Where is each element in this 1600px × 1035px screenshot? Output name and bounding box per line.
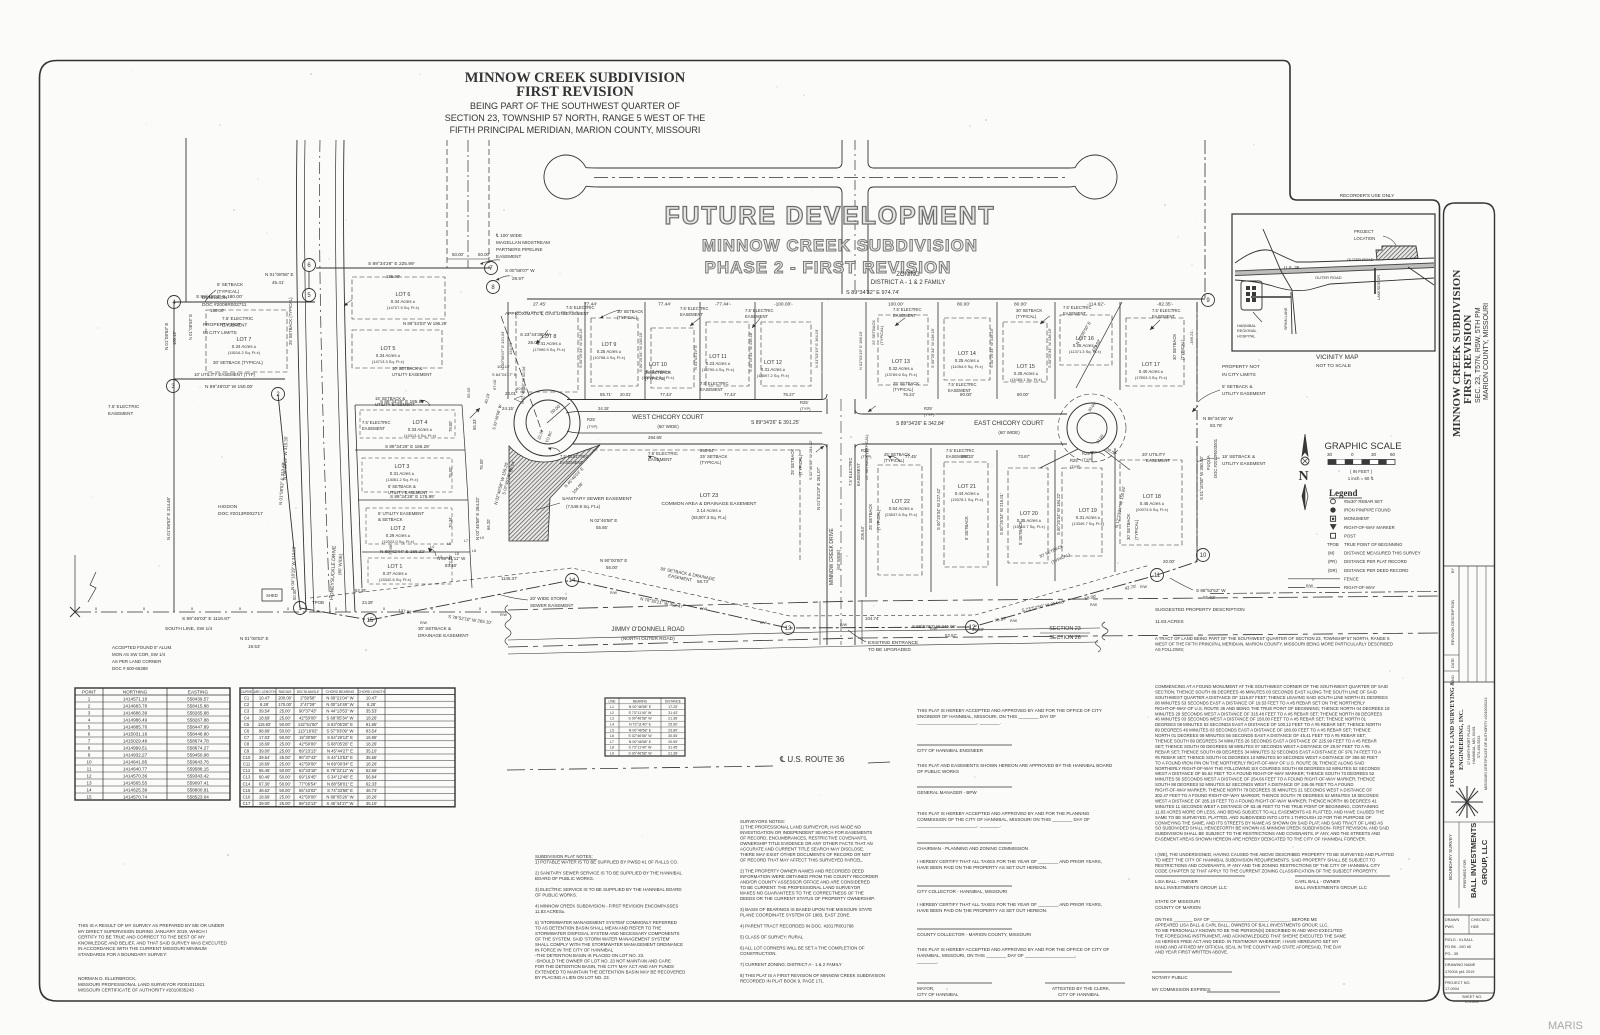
svg-text:S 00°58'07" W: S 00°58'07" W bbox=[505, 268, 535, 273]
svg-text:30' SETBACK: 30' SETBACK bbox=[1126, 514, 1131, 540]
svg-text:THERE MAY EXIST OTHER DOCUMENT: THERE MAY EXIST OTHER DOCUMENTS OF RECOR… bbox=[740, 852, 871, 857]
svg-text:L9: L9 bbox=[480, 536, 484, 540]
svg-text:MONUMENT: MONUMENT bbox=[1344, 516, 1370, 521]
svg-text:(14713.3 Sq. Ft.±): (14713.3 Sq. Ft.±) bbox=[372, 359, 405, 364]
svg-text:SAME TO BE SURVEYED, PLATTED,: SAME TO BE SURVEYED, PLATTED, AND SUBDIV… bbox=[1155, 815, 1372, 820]
svg-text:THIS PLAT IS HEREBY ACCEPTED A: THIS PLAT IS HEREBY ACCEPTED AND APPROVE… bbox=[917, 811, 1090, 816]
svg-text:POST: POST bbox=[1344, 533, 1356, 538]
svg-text:OF THE SYSTEM. SAID 'STORM WA: OF THE SYSTEM. SAID 'STORM WATER MANAGEM… bbox=[535, 937, 670, 942]
svg-text:EAST CHICORY COURT: EAST CHICORY COURT bbox=[974, 420, 1044, 427]
svg-text:C1: C1 bbox=[244, 696, 250, 701]
svg-text:MON AS SW COR, SW 1/4: MON AS SW COR, SW 1/4 bbox=[112, 652, 166, 657]
svg-text:C6: C6 bbox=[244, 729, 250, 734]
svg-text:50.00': 50.00' bbox=[279, 788, 290, 793]
svg-text:A TRACT OF LAND BEING PART OF: A TRACT OF LAND BEING PART OF THE SOUTHW… bbox=[1155, 636, 1390, 641]
svg-text:50.00': 50.00' bbox=[279, 781, 290, 786]
svg-text:75.00': 75.00' bbox=[448, 467, 453, 478]
svg-text:1414625.39: 1414625.39 bbox=[123, 787, 148, 792]
svg-text:48.62': 48.62' bbox=[259, 788, 270, 793]
svg-text:(TYP): (TYP) bbox=[924, 412, 935, 417]
svg-text:0.25 Acres ±: 0.25 Acres ± bbox=[1014, 371, 1039, 376]
svg-text:89 DEGREES 46 MINUTES 03 SECON: 89 DEGREES 46 MINUTES 03 SECONDS EAST A … bbox=[1155, 728, 1371, 733]
svg-text:(10790.4 Sq. Ft.±): (10790.4 Sq. Ft.±) bbox=[702, 367, 735, 372]
svg-text:STORMWATER DISPOSAL SYSTEM AND: STORMWATER DISPOSAL SYSTEM AND NECESSARY… bbox=[535, 931, 680, 936]
svg-text:10' UTILITY EASEMENT (TYP): 10' UTILITY EASEMENT (TYP) bbox=[194, 372, 256, 377]
svg-text:MINUTES 29 SECONDS WEST A DIST: MINUTES 29 SECONDS WEST A DISTANCE OF 31… bbox=[1155, 711, 1382, 716]
svg-text:DOC #2009R002711: DOC #2009R002711 bbox=[202, 302, 247, 308]
svg-text:SECTION 26: SECTION 26 bbox=[1049, 635, 1080, 641]
svg-text:AS HER/HIS FREE ACT AND DEED.: AS HER/HIS FREE ACT AND DEED. IN TESTIMO… bbox=[1155, 939, 1339, 944]
svg-text:LOT 15: LOT 15 bbox=[1017, 364, 1035, 370]
svg-text:CITY OF HANNIBAL ENGINEER: CITY OF HANNIBAL ENGINEER bbox=[917, 748, 984, 753]
svg-text:S 02°46'58" W 284.32': S 02°46'58" W 284.32' bbox=[808, 440, 813, 480]
svg-text:CARL BALL - OWNER: CARL BALL - OWNER bbox=[1295, 879, 1341, 884]
svg-text:5' SETBACK &: 5' SETBACK & bbox=[388, 484, 416, 489]
svg-text:(19378.1 Sq. Ft.±): (19378.1 Sq. Ft.±) bbox=[951, 497, 984, 502]
svg-text:12: 12 bbox=[86, 773, 92, 778]
svg-text:TPOB: TPOB bbox=[1327, 542, 1339, 547]
svg-text:INFORMATION WERE OBTAINED FROM: INFORMATION WERE OBTAINED FROM THE COUNT… bbox=[740, 874, 878, 879]
svg-text:(M): (M) bbox=[1328, 551, 1335, 556]
svg-text:S 01°10'50" W 350.50': S 01°10'50" W 350.50' bbox=[1199, 456, 1204, 500]
svg-text:LOT 5: LOT 5 bbox=[381, 346, 396, 352]
svg-text:73.67': 73.67' bbox=[1018, 454, 1030, 459]
svg-text:-82.35'-: -82.35'- bbox=[1157, 302, 1174, 308]
svg-text:LOT 10: LOT 10 bbox=[649, 362, 667, 368]
svg-text:90°37'43": 90°37'43" bbox=[299, 709, 317, 714]
svg-text:18.26': 18.26' bbox=[366, 795, 377, 800]
svg-text:7.5' ELECTRIC: 7.5' ELECTRIC bbox=[1152, 308, 1181, 313]
svg-text:L6: L6 bbox=[455, 552, 459, 556]
svg-text:S 02°46'58" W: S 02°46'58" W bbox=[628, 734, 652, 738]
svg-text:FUTURE DEVELOPMENT: FUTURE DEVELOPMENT bbox=[664, 202, 995, 230]
svg-text:(14707.9 Sq. Ft.±): (14707.9 Sq. Ft.±) bbox=[387, 305, 420, 310]
svg-text:HANNIBAL: HANNIBAL bbox=[1237, 324, 1256, 328]
svg-text:15' SETBACK &: 15' SETBACK & bbox=[1222, 454, 1255, 459]
svg-text:ENGINEERING, INC.: ENGINEERING, INC. bbox=[1458, 709, 1465, 770]
svg-text:R/W: R/W bbox=[1140, 585, 1148, 589]
svg-text:JIMMY O'DONNELL ROAD: JIMMY O'DONNELL ROAD bbox=[611, 627, 685, 633]
svg-text:55.65': 55.65' bbox=[596, 525, 608, 530]
svg-text:S 89°34'26" E 342.84': S 89°34'26" E 342.84' bbox=[896, 421, 945, 427]
svg-text:S 89°46'03" E 1116.87': S 89°46'03" E 1116.87' bbox=[182, 616, 231, 622]
svg-text:25.00': 25.00' bbox=[279, 755, 290, 760]
svg-text:LOT 2: LOT 2 bbox=[391, 526, 406, 532]
svg-text:(10758.4 Sq. Ft.±): (10758.4 Sq. Ft.±) bbox=[593, 355, 626, 360]
svg-text:7.5' ELECTRIC: 7.5' ELECTRIC bbox=[848, 458, 853, 487]
svg-text:5) CLASS OF SURVEY: RURAL: 5) CLASS OF SURVEY: RURAL bbox=[740, 935, 804, 940]
svg-text:42°50'00": 42°50'00" bbox=[299, 715, 317, 720]
svg-text:7: 7 bbox=[88, 738, 91, 743]
svg-text:8: 8 bbox=[88, 745, 91, 750]
svg-text:DEEDS OR THE CURRENT STATUS OF: DEEDS OR THE CURRENT STATUS OF PROPERTY … bbox=[740, 896, 875, 901]
svg-text:558267.88: 558267.88 bbox=[187, 717, 209, 722]
svg-text:NORTHERLY RIGHT-OF-WAY THE FOL: NORTHERLY RIGHT-OF-WAY THE FOLLOWING SIX… bbox=[1155, 766, 1380, 771]
svg-text:SUBDIVISION SHALL BE SUBJECT T: SUBDIVISION SHALL BE SUBJECT TO THE REST… bbox=[1155, 831, 1380, 836]
svg-text:558674.27: 558674.27 bbox=[187, 745, 209, 750]
svg-text:67.00': 67.00' bbox=[492, 379, 497, 390]
svg-text:REGIONAL: REGIONAL bbox=[1237, 329, 1257, 333]
svg-text:EASEMENT: EASEMENT bbox=[566, 311, 589, 316]
svg-text:104.74': 104.74' bbox=[865, 616, 879, 621]
svg-text:N 89°42'44" E 166.22': N 89°42'44" E 166.22' bbox=[380, 549, 425, 554]
svg-text:& SETBACK: & SETBACK bbox=[378, 517, 403, 522]
svg-text:S 63°05'26" E: S 63°05'26" E bbox=[327, 722, 353, 727]
svg-text:80.00': 80.00' bbox=[1014, 302, 1027, 308]
svg-text:70.34': 70.34' bbox=[448, 517, 453, 528]
svg-text:PG - 35: PG - 35 bbox=[1445, 952, 1458, 956]
svg-text:LOT 12: LOT 12 bbox=[764, 360, 782, 366]
svg-text:IN FORCE IN THE CITY OF HANNIB: IN FORCE IN THE CITY OF HANNIBAL bbox=[535, 948, 614, 953]
svg-text:PARTNERS PIPELINE: PARTNERS PIPELINE bbox=[496, 247, 543, 252]
svg-text:(60' WIDE): (60' WIDE) bbox=[836, 549, 841, 570]
svg-text:(TYPICAL): (TYPICAL) bbox=[645, 376, 666, 381]
svg-text:63°33'16": 63°33'16" bbox=[299, 768, 317, 773]
svg-text:(DR): (DR) bbox=[1328, 568, 1338, 573]
svg-text:LOCATION: LOCATION bbox=[1354, 236, 1375, 241]
svg-text:20.59': 20.59' bbox=[668, 740, 678, 744]
svg-text:C13: C13 bbox=[243, 775, 251, 780]
svg-text:N 00°46'58" E: N 00°46'58" E bbox=[629, 705, 652, 709]
svg-text:N 89°34'26" W: N 89°34'26" W bbox=[1203, 416, 1234, 421]
svg-text:(60' WIDE): (60' WIDE) bbox=[657, 424, 679, 429]
svg-text:HANNIBAL, MISSOURI, ON THIS __: HANNIBAL, MISSOURI, ON THIS ________ DAY… bbox=[917, 953, 1076, 958]
svg-text:11.83 ACRES±.: 11.83 ACRES±. bbox=[535, 909, 565, 914]
svg-text:18.26': 18.26' bbox=[366, 762, 377, 767]
svg-text:TO ME PERSONALLY KNOWN TO BE T: TO ME PERSONALLY KNOWN TO BE THE PERSON(… bbox=[1155, 928, 1342, 933]
svg-text:(93,007.3 Sq. Ft.±): (93,007.3 Sq. Ft.±) bbox=[692, 515, 727, 520]
svg-text:UTILITY EASEMENT: UTILITY EASEMENT bbox=[392, 372, 432, 377]
svg-text:5' SETBACK: 5' SETBACK bbox=[964, 516, 969, 540]
svg-text:11.83 ACRES: 11.83 ACRES bbox=[1155, 619, 1184, 624]
svg-text:25.00': 25.00' bbox=[279, 801, 290, 806]
svg-text:L3: L3 bbox=[438, 555, 442, 559]
svg-text:LOT 21: LOT 21 bbox=[958, 484, 976, 490]
svg-text:C10: C10 bbox=[243, 755, 251, 760]
svg-text:BEARING: BEARING bbox=[633, 699, 648, 703]
svg-text:50.00': 50.00' bbox=[279, 735, 290, 740]
svg-text:1414686.39: 1414686.39 bbox=[123, 710, 148, 715]
svg-text:N 01°08'53" E 314.48': N 01°08'53" E 314.48' bbox=[166, 497, 171, 540]
svg-text:ZONING: ZONING bbox=[896, 272, 920, 278]
svg-text:I (WE), THE UNDERSIGNED, HAVIN: I (WE), THE UNDERSIGNED, HAVING CAUSED T… bbox=[1155, 852, 1394, 857]
svg-text:30.55': 30.55' bbox=[668, 734, 678, 738]
svg-text:(13061.2 Sq. Ft.±): (13061.2 Sq. Ft.±) bbox=[386, 477, 419, 482]
svg-text:25.00': 25.00' bbox=[279, 762, 290, 767]
svg-text:25' SETBACK (TYPICAL): 25' SETBACK (TYPICAL) bbox=[288, 297, 293, 345]
svg-text:2) THE PROPERTY OWNER NAMES AN: 2) THE PROPERTY OWNER NAMES AND RECORDED… bbox=[740, 869, 864, 874]
svg-text:BALL INVESTMENTS GROUP, LLC: BALL INVESTMENTS GROUP, LLC bbox=[1155, 885, 1228, 890]
svg-text:21.38': 21.38' bbox=[668, 752, 678, 756]
svg-text:S 89°34'26" E 225.99': S 89°34'26" E 225.99' bbox=[368, 261, 415, 267]
svg-text:N: N bbox=[1299, 469, 1309, 484]
svg-text:(23537.6 Sq. Ft.±): (23537.6 Sq. Ft.±) bbox=[885, 512, 918, 517]
svg-text:EASEMENT: EASEMENT bbox=[496, 254, 521, 259]
svg-text:7.5' ELECTRIC: 7.5' ELECTRIC bbox=[566, 305, 595, 310]
svg-text:GENERAL MANAGER - BPW: GENERAL MANAGER - BPW bbox=[917, 790, 977, 795]
svg-text:SOUTH LINE, SW 1/4: SOUTH LINE, SW 1/4 bbox=[165, 626, 213, 632]
svg-text:08 MINUTES 53 SECONDS EAST A D: 08 MINUTES 53 SECONDS EAST A DISTANCE OF… bbox=[1155, 700, 1365, 705]
svg-text:R/W: R/W bbox=[1010, 619, 1018, 623]
svg-text:558415.88: 558415.88 bbox=[187, 703, 209, 708]
svg-text:(13349.7 Sq. Ft.±): (13349.7 Sq. Ft.±) bbox=[1072, 521, 1105, 526]
svg-text:S 54°29'13" E: S 54°29'13" E bbox=[327, 735, 353, 740]
svg-text:MINUTES 56 SECONDS WEST A DIST: MINUTES 56 SECONDS WEST A DISTANCE OF 25… bbox=[1155, 777, 1375, 782]
svg-text:S 89°34'26" E 186.29': S 89°34'26" E 186.29' bbox=[385, 444, 430, 449]
svg-text:LAKESIDE DR.: LAKESIDE DR. bbox=[1377, 274, 1381, 300]
svg-text:DISTANCE PER PLAT RECORD: DISTANCE PER PLAT RECORD bbox=[1344, 559, 1407, 564]
svg-text:IRON PIN/PIPE FOUND: IRON PIN/PIPE FOUND bbox=[1344, 508, 1391, 513]
svg-text:0.25 Acres ±: 0.25 Acres ± bbox=[955, 358, 980, 363]
svg-text:8) THIS PLAT IS A FIRST REVISI: 8) THIS PLAT IS A FIRST REVISION OF MINN… bbox=[740, 973, 885, 978]
svg-text:83.54': 83.54' bbox=[366, 729, 377, 734]
svg-text:LOT 11: LOT 11 bbox=[709, 354, 726, 360]
svg-text:R/W: R/W bbox=[840, 623, 848, 627]
svg-text:1414986.49: 1414986.49 bbox=[123, 717, 148, 722]
svg-text:7.5' ELECTRIC: 7.5' ELECTRIC bbox=[108, 404, 140, 409]
svg-text:-SHOULD THE OWNER OF LOT NO. 2: -SHOULD THE OWNER OF LOT NO. 23 NOT MAIN… bbox=[535, 959, 671, 964]
svg-text:558448.80: 558448.80 bbox=[187, 731, 209, 736]
svg-text:31.45': 31.45' bbox=[668, 746, 678, 750]
svg-text:(13697.2 Sq. Ft.±): (13697.2 Sq. Ft.±) bbox=[757, 373, 790, 378]
svg-text:113°19'02": 113°19'02" bbox=[298, 729, 318, 734]
svg-text:558265.88: 558265.88 bbox=[187, 710, 209, 715]
svg-text:1414932.27: 1414932.27 bbox=[123, 752, 148, 757]
svg-text:AS FOLLOWS;: AS FOLLOWS; bbox=[1155, 647, 1184, 652]
svg-text:________.: ________. bbox=[916, 959, 938, 964]
svg-text:S 44°13'53" E: S 44°13'53" E bbox=[327, 755, 353, 760]
svg-text:0.25 Acres ±: 0.25 Acres ± bbox=[597, 349, 622, 354]
svg-text:55.71': 55.71' bbox=[600, 392, 612, 397]
svg-text:(TYPICAL): (TYPICAL) bbox=[1134, 519, 1139, 540]
svg-text:(17990.9 Sq. Ft.±): (17990.9 Sq. Ft.±) bbox=[533, 347, 566, 352]
svg-text:23.80': 23.80' bbox=[668, 728, 678, 732]
svg-text:0.31 Acres ±: 0.31 Acres ± bbox=[1076, 515, 1101, 520]
svg-text:RADIUS: RADIUS bbox=[279, 690, 293, 694]
svg-text:45.41': 45.41' bbox=[272, 280, 284, 285]
svg-text:S 00°25'34" W 138.18': S 00°25'34" W 138.18' bbox=[748, 332, 753, 372]
svg-text:N 90°00'00" E: N 90°00'00" E bbox=[600, 558, 627, 563]
svg-text:18.26': 18.26' bbox=[366, 715, 377, 720]
svg-text:25' SETBACK: 25' SETBACK bbox=[790, 449, 795, 475]
svg-text:OWNERSHIP TITLE EVIDENCE OR AN: OWNERSHIP TITLE EVIDENCE OR ANY OTHER FA… bbox=[740, 841, 873, 846]
svg-text:2: 2 bbox=[88, 703, 91, 708]
svg-text:MISSOURI CERTIFICATE OF AUTHOR: MISSOURI CERTIFICATE OF AUTHORITY #20100… bbox=[78, 988, 194, 993]
svg-text:20.00': 20.00' bbox=[1163, 559, 1175, 564]
svg-text:67.30': 67.30' bbox=[259, 781, 270, 786]
svg-text:25' SETBACK: 25' SETBACK bbox=[700, 454, 728, 459]
svg-text:PWS: PWS bbox=[1445, 925, 1454, 929]
svg-text:20.01': 20.01' bbox=[620, 392, 631, 397]
svg-text:FIFTH PRINCIPAL MERIDIAN, MAR: FIFTH PRINCIPAL MERIDIAN, MARION COUNTY,… bbox=[450, 125, 701, 135]
svg-text:(TYPICAL): (TYPICAL) bbox=[876, 509, 881, 530]
svg-text:S 89°34'32" E 974.74': S 89°34'32" E 974.74' bbox=[846, 290, 899, 296]
svg-text:53.39': 53.39' bbox=[355, 588, 366, 593]
svg-text:55°43'02": 55°43'02" bbox=[299, 788, 317, 793]
svg-text:124.00': 124.00' bbox=[508, 342, 513, 355]
svg-text:REVISION DESCRIPTION: REVISION DESCRIPTION bbox=[1451, 600, 1455, 645]
svg-text:132°51'50": 132°51'50" bbox=[298, 722, 319, 727]
svg-text:30' SETBACK (TYPICAL): 30' SETBACK (TYPICAL) bbox=[213, 360, 263, 365]
svg-text:35.10': 35.10' bbox=[366, 801, 377, 806]
svg-text:2) SANITARY SEWER SERVICE IS T: 2) SANITARY SEWER SERVICE IS TO BE SUPPL… bbox=[535, 871, 683, 876]
svg-text:OF RECORD THAT MAY AFFECT THIS: OF RECORD THAT MAY AFFECT THIS SURVEYED … bbox=[740, 858, 863, 863]
svg-text:29.97': 29.97' bbox=[512, 276, 524, 281]
svg-text:558674.78: 558674.78 bbox=[187, 738, 209, 743]
svg-text:39.54': 39.54' bbox=[259, 755, 270, 760]
svg-text:0.34 Acres ±: 0.34 Acres ± bbox=[391, 299, 416, 304]
svg-text:50.00': 50.00' bbox=[279, 768, 290, 773]
svg-text:L5: L5 bbox=[447, 542, 451, 546]
svg-text:89°22'13": 89°22'13" bbox=[299, 801, 317, 806]
svg-text:C4: C4 bbox=[244, 715, 250, 720]
svg-text:TO BE UPGRADED: TO BE UPGRADED bbox=[868, 647, 911, 653]
svg-text:83.48': 83.48' bbox=[445, 563, 457, 568]
svg-text:559097.41: 559097.41 bbox=[187, 780, 209, 785]
svg-text:N 88°58'01" E: N 88°58'01" E bbox=[327, 781, 353, 786]
svg-text:50.00': 50.00' bbox=[452, 252, 464, 257]
svg-text:DISTRICT A - 1 & 2 FAMILY: DISTRICT A - 1 & 2 FAMILY bbox=[871, 280, 945, 286]
svg-text:L7: L7 bbox=[464, 539, 468, 543]
svg-text:N 01°08'53" E: N 01°08'53" E bbox=[188, 314, 193, 340]
svg-text:EASEMENT: EASEMENT bbox=[648, 457, 672, 462]
svg-text:0.41 Acres ±: 0.41 Acres ± bbox=[537, 341, 562, 346]
svg-text:15' SETBACK &: 15' SETBACK & bbox=[375, 396, 405, 401]
svg-text:LOT 17: LOT 17 bbox=[1142, 362, 1160, 368]
svg-text:17-0004: 17-0004 bbox=[1445, 987, 1459, 991]
svg-text:0.44 Acres ±: 0.44 Acres ± bbox=[955, 491, 980, 496]
svg-text:LOT 6: LOT 6 bbox=[396, 292, 411, 298]
svg-text:SECTION; THENCE SOUTH 89 DEGRE: SECTION; THENCE SOUTH 89 DEGREES 46 MINU… bbox=[1155, 689, 1377, 694]
svg-text:7.5' ELECTRIC: 7.5' ELECTRIC bbox=[680, 306, 709, 311]
svg-text:558800.91: 558800.91 bbox=[187, 787, 209, 792]
svg-text:7.5' ELECTRIC: 7.5' ELECTRIC bbox=[362, 420, 391, 425]
svg-text:35.10': 35.10' bbox=[366, 748, 377, 753]
svg-text:R/W: R/W bbox=[610, 591, 618, 595]
svg-text:2°59'58": 2°59'58" bbox=[300, 696, 316, 701]
svg-text:LOT 1: LOT 1 bbox=[388, 564, 403, 570]
svg-text:GRAPHIC SCALE: GRAPHIC SCALE bbox=[1324, 441, 1401, 452]
svg-text:S 68°05'26" E: S 68°05'26" E bbox=[327, 742, 353, 747]
svg-text:MINNOW CREEK DRIVE: MINNOW CREEK DRIVE bbox=[829, 528, 835, 585]
svg-text:10: 10 bbox=[86, 759, 92, 764]
svg-text:1414571.19: 1414571.19 bbox=[123, 696, 148, 701]
svg-text:MISSOURI CERTIFICATE OF AUTHOR: MISSOURI CERTIFICATE OF AUTHORITY #20100… bbox=[1484, 698, 1488, 790]
svg-text:CHORD BEARING: CHORD BEARING bbox=[326, 690, 355, 694]
svg-text:CONSTRUCTION.: CONSTRUCTION. bbox=[740, 951, 777, 956]
svg-text:DISTANCE: DISTANCE bbox=[665, 699, 681, 703]
svg-text:55.33': 55.33' bbox=[466, 387, 471, 398]
svg-text:150.00': 150.00' bbox=[210, 308, 224, 313]
svg-text:RECORDER'S USE ONLY: RECORDER'S USE ONLY bbox=[1340, 193, 1394, 198]
svg-text:S 89°46'03" E 180.00': S 89°46'03" E 180.00' bbox=[196, 294, 243, 300]
svg-text:R/W: R/W bbox=[500, 613, 508, 617]
svg-text:(17503.3 Sq. Ft.±): (17503.3 Sq. Ft.±) bbox=[1135, 375, 1168, 380]
svg-text:S 68°05'34" W: S 68°05'34" W bbox=[326, 715, 353, 720]
svg-text:1414565.55: 1414565.55 bbox=[123, 780, 148, 785]
svg-text:1) THE PROFESSIONAL LAND SURVE: 1) THE PROFESSIONAL LAND SURVEYOR, HAS M… bbox=[740, 825, 862, 830]
svg-text:PREPARED FOR:: PREPARED FOR: bbox=[1463, 859, 1467, 888]
svg-text:SHEET NO.: SHEET NO. bbox=[1462, 995, 1482, 999]
svg-text:13: 13 bbox=[785, 626, 792, 632]
svg-text:559343.42: 559343.42 bbox=[187, 773, 209, 778]
svg-text:S 79°22'12" W: S 79°22'12" W bbox=[326, 768, 353, 773]
svg-text:VICINITY MAP: VICINITY MAP bbox=[1316, 354, 1359, 361]
svg-text:205.53': 205.53' bbox=[860, 526, 865, 540]
svg-text:(TYPICAL): (TYPICAL) bbox=[1180, 339, 1185, 360]
svg-text:DOC # 600-65388: DOC # 600-65388 bbox=[112, 666, 148, 671]
svg-text:OF PUBLIC WORKS.: OF PUBLIC WORKS. bbox=[535, 893, 577, 898]
svg-text:559643.76: 559643.76 bbox=[187, 759, 209, 764]
svg-text:EASEMENT: EASEMENT bbox=[1152, 314, 1175, 319]
svg-text:573-406-5533: 573-406-5533 bbox=[1477, 736, 1481, 758]
svg-text:25.00': 25.00' bbox=[279, 748, 290, 753]
svg-text:56.84': 56.84' bbox=[366, 775, 377, 780]
svg-text:39.00': 39.00' bbox=[259, 748, 270, 753]
svg-text:NOTARY PUBLIC: NOTARY PUBLIC bbox=[1152, 975, 1189, 980]
svg-text:17 NORTHPORT PLAZA: 17 NORTHPORT PLAZA bbox=[1467, 724, 1471, 765]
svg-text:5' SETBACK: 5' SETBACK bbox=[217, 282, 244, 287]
svg-text:S 89°34'26" E 391.25': S 89°34'26" E 391.25' bbox=[751, 420, 800, 426]
svg-text:35.53': 35.53' bbox=[366, 709, 377, 714]
svg-text:LOT 23: LOT 23 bbox=[700, 493, 719, 499]
svg-text:UTILITY EASEMENT: UTILITY EASEMENT bbox=[1222, 461, 1266, 466]
svg-text:CITY OF HANNIBAL: CITY OF HANNIBAL bbox=[917, 992, 959, 997]
svg-text:REBAR SET; THENCE SOUTH 89 DEG: REBAR SET; THENCE SOUTH 89 DEGREES 34 MI… bbox=[1155, 749, 1381, 754]
svg-text:7.5' ELECTRIC: 7.5' ELECTRIC bbox=[700, 381, 729, 386]
svg-text:62.33': 62.33' bbox=[366, 781, 377, 786]
svg-text:COMMENCING AT A FOUND MONUMENT: COMMENCING AT A FOUND MONUMENT AT THE SO… bbox=[1155, 684, 1388, 689]
svg-text:5' SETBACK &: 5' SETBACK & bbox=[1222, 384, 1253, 389]
svg-text:N 89°34'03" W 196.29': N 89°34'03" W 196.29' bbox=[403, 321, 447, 326]
svg-text:L9: L9 bbox=[610, 752, 614, 756]
svg-text:LISA BALL - OWNER: LISA BALL - OWNER bbox=[1155, 879, 1199, 884]
svg-text:195.99': 195.99' bbox=[386, 274, 400, 279]
svg-text:77°06'54": 77°06'54" bbox=[299, 781, 317, 786]
svg-text:CHECKED: CHECKED bbox=[1471, 918, 1490, 922]
svg-text:TO MEET THE CITY OF HANNIBAL S: TO MEET THE CITY OF HANNIBAL SUBDIVISION… bbox=[1155, 857, 1376, 862]
svg-text:N 01°03'19" E 261.07': N 01°03'19" E 261.07' bbox=[816, 467, 821, 510]
svg-text:N 01°03'19" E: N 01°03'19" E bbox=[693, 345, 698, 370]
svg-text:MY DIRECT SUPERVISION DURING J: MY DIRECT SUPERVISION DURING JANUARY 201… bbox=[78, 929, 207, 934]
svg-text:(11065.1 Sq. Ft.±): (11065.1 Sq. Ft.±) bbox=[1010, 377, 1043, 382]
svg-text:1) POTABLE WATER IS TO BE SUPP: 1) POTABLE WATER IS TO BE SUPPLIED BY PW… bbox=[535, 860, 678, 865]
svg-text:DISTANCE MEASURED THIS SURVEY: DISTANCE MEASURED THIS SURVEY bbox=[1344, 551, 1421, 556]
svg-text:HAVE BEEN PAID ON THE PROPERTY: HAVE BEEN PAID ON THE PROPERTY AS SET OU… bbox=[917, 908, 1047, 913]
svg-text:N 69°00'34" E: N 69°00'34" E bbox=[327, 762, 353, 767]
svg-text:25.50': 25.50' bbox=[668, 723, 678, 727]
svg-text:14: 14 bbox=[569, 578, 576, 584]
svg-text:R25': R25' bbox=[800, 400, 809, 405]
svg-text:OF PUBLIC WORKS: OF PUBLIC WORKS bbox=[917, 769, 959, 774]
svg-text:________________________, ____: ________________________, ________. bbox=[916, 720, 1001, 725]
svg-text:S 00°25'34" W 138.19': S 00°25'34" W 138.19' bbox=[638, 332, 643, 372]
svg-text:N 01°08'56" E: N 01°08'56" E bbox=[265, 272, 294, 277]
svg-text:558439.57: 558439.57 bbox=[187, 696, 209, 701]
svg-text:7.5' ELECTRIC: 7.5' ELECTRIC bbox=[1063, 305, 1092, 310]
svg-text:89°23'13": 89°23'13" bbox=[299, 748, 317, 753]
svg-text:25' SETBACK: 25' SETBACK bbox=[868, 504, 873, 530]
svg-text:EASEMENT: EASEMENT bbox=[108, 411, 133, 416]
svg-text:MAYOR,: MAYOR, bbox=[917, 986, 934, 991]
svg-text:15: 15 bbox=[86, 794, 92, 799]
svg-text:BALL INVESTMENTS: BALL INVESTMENTS bbox=[1469, 823, 1478, 898]
svg-text:INVESTIGATION OR INDEPENDENT S: INVESTIGATION OR INDEPENDENT SEARCH FOR … bbox=[740, 830, 872, 835]
svg-text:EASTING: EASTING bbox=[188, 689, 209, 694]
svg-text:1415029.48: 1415029.48 bbox=[123, 738, 148, 743]
svg-text:SANITARY SEWER EASEMENT: SANITARY SEWER EASEMENT bbox=[562, 496, 632, 502]
svg-text:77.44': 77.44' bbox=[724, 392, 736, 397]
